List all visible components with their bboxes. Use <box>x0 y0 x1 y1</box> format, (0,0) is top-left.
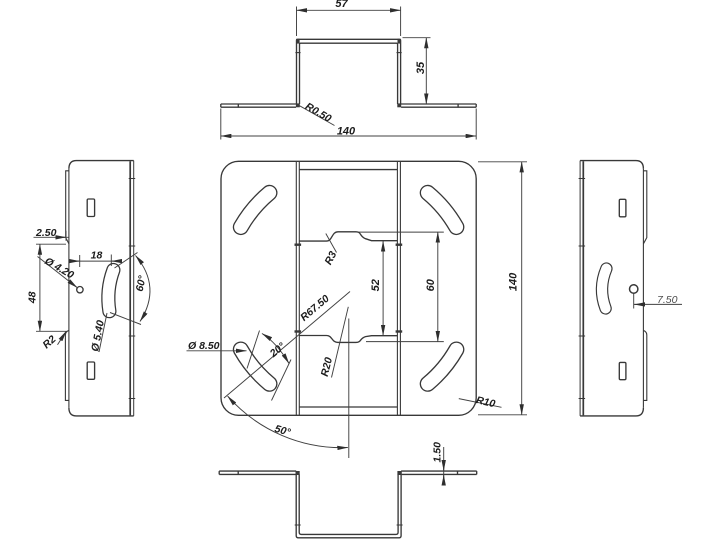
svg-text:R10: R10 <box>475 394 497 410</box>
svg-text:57: 57 <box>335 0 348 10</box>
svg-text:35: 35 <box>415 61 427 74</box>
svg-text:7.50: 7.50 <box>657 294 678 306</box>
svg-text:60°: 60° <box>134 274 149 293</box>
svg-text:1.50: 1.50 <box>432 442 444 463</box>
svg-text:Ø 4.20: Ø 4.20 <box>43 255 76 281</box>
svg-text:R3: R3 <box>322 249 339 267</box>
svg-text:52: 52 <box>370 279 382 291</box>
svg-text:140: 140 <box>508 272 520 291</box>
svg-text:R67.50: R67.50 <box>298 293 332 324</box>
svg-text:18: 18 <box>91 249 103 261</box>
svg-text:60: 60 <box>425 278 437 291</box>
svg-text:50°: 50° <box>273 423 292 439</box>
svg-text:R2: R2 <box>40 333 58 351</box>
svg-text:140: 140 <box>337 125 356 137</box>
svg-text:R0.50: R0.50 <box>303 101 333 125</box>
svg-text:Ø 5.40: Ø 5.40 <box>89 319 107 352</box>
svg-text:48: 48 <box>27 291 39 304</box>
svg-text:2.50: 2.50 <box>35 227 57 239</box>
svg-text:Ø 8.50: Ø 8.50 <box>188 340 220 352</box>
